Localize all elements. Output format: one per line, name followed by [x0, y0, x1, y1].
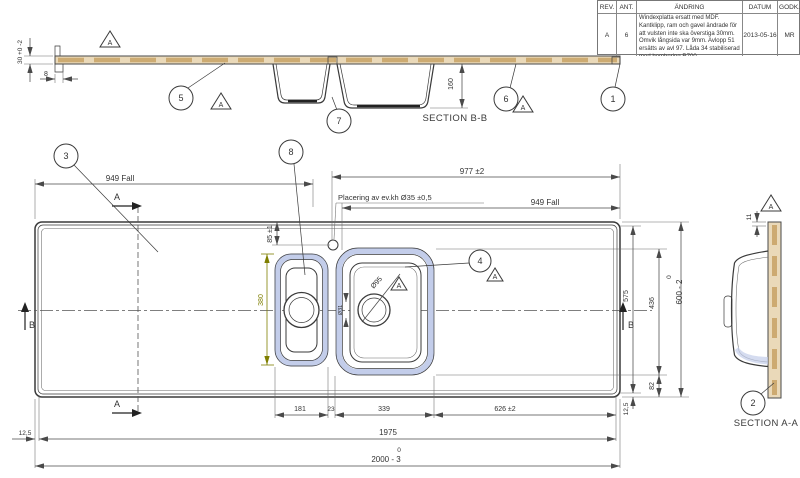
svg-text:4: 4 [477, 256, 482, 266]
dim-front-height-text: 30 +0 -2 [17, 40, 24, 64]
rev-header-ant: ANT. [617, 1, 637, 14]
large-bowl-inner-line [340, 64, 431, 105]
dim-fall-left: 949 Fall [35, 174, 313, 219]
dim-corner-bottom-right: 12,5 [623, 381, 633, 415]
datum-flag-a-3: A [100, 31, 120, 47]
svg-text:B: B [29, 320, 35, 330]
rev-header-rev: REV. [598, 1, 617, 14]
dim-corner-left: 12,5 [12, 430, 35, 439]
svg-text:380: 380 [258, 294, 265, 306]
rev-cell-godk: MR [778, 14, 800, 56]
small-bowl-inner-line [276, 64, 327, 100]
section-aa-label: SECTION A-A [734, 418, 799, 429]
svg-text:11: 11 [746, 213, 753, 220]
edge-fold [55, 64, 63, 72]
dim-lip: 11 [746, 211, 766, 237]
svg-text:436: 436 [649, 297, 656, 309]
section-arrow-b-right: B [619, 302, 634, 330]
dim-flat-length: 1975 [39, 395, 616, 441]
svg-text:12,5: 12,5 [623, 402, 630, 415]
dim-chain-339: 339 [378, 406, 390, 413]
svg-text:82: 82 [649, 382, 656, 390]
svg-text:2: 2 [750, 398, 755, 408]
dim-chain-181: 181 [294, 406, 306, 413]
rev-cell-andring: Windexplatta ersatt med MDF. Kantklipp, … [637, 14, 743, 56]
svg-text:575: 575 [623, 290, 630, 302]
rev-header-andring: ÄNDRING [637, 1, 743, 14]
svg-text:1: 1 [610, 94, 615, 104]
section-arrow-b-left: B [21, 302, 35, 330]
dim-total-length-tol: 0 [397, 447, 401, 454]
rev-header-godk: GODK. [778, 1, 800, 14]
dim-chain-626: 626 ±2 [494, 406, 515, 413]
overflow-detail-aa [724, 296, 732, 327]
section-bb-label: SECTION B-B [422, 113, 487, 124]
svg-text:3: 3 [63, 151, 68, 161]
section-arrow-a-top: A [112, 192, 142, 210]
bowl-profile-inner-aa [736, 257, 768, 362]
section-bb-view: 30 +0 -2 8 160 5 [17, 31, 625, 133]
svg-text:7: 7 [336, 116, 341, 126]
technical-drawing-svg: 30 +0 -2 8 160 5 [0, 0, 800, 478]
revision-table: REV. ANT. ÄNDRING DATUM GODK. A 6 Windex… [597, 0, 800, 55]
svg-text:Ø31: Ø31 [338, 305, 344, 315]
svg-text:0: 0 [666, 275, 673, 279]
svg-text:600 - 2: 600 - 2 [675, 279, 684, 304]
svg-text:A: A [114, 192, 120, 202]
front-edge-lip [55, 46, 60, 56]
balloon-1: 1 [601, 64, 625, 111]
svg-text:A: A [108, 40, 113, 47]
dim-bowl-to-edge: 82 [649, 375, 659, 397]
rev-cell-rev: A [598, 14, 617, 56]
balloon-7: 7 [327, 97, 351, 133]
svg-text:949 Fall: 949 Fall [106, 174, 135, 183]
datum-flag-a-6: A [761, 195, 781, 211]
svg-text:85 ±1: 85 ±1 [267, 225, 274, 243]
balloon-5: 5 [169, 63, 225, 110]
svg-text:A: A [219, 102, 224, 109]
dim-bowl-depth: 160 [430, 64, 468, 108]
svg-text:A: A [114, 399, 120, 409]
svg-text:5: 5 [178, 93, 183, 103]
svg-text:977 ±2: 977 ±2 [460, 167, 485, 176]
svg-text:A: A [521, 105, 526, 112]
svg-text:12,5: 12,5 [19, 430, 32, 437]
balloon-6: 6 [494, 64, 518, 111]
rev-cell-ant: 6 [617, 14, 637, 56]
section-aa-view: A 11 2 SECTION A-A [724, 195, 799, 429]
dim-chain-23: 23 [327, 406, 335, 413]
rev-cell-datum: 2013-05-16 [743, 14, 778, 56]
svg-text:6: 6 [503, 94, 508, 104]
svg-text:1975: 1975 [379, 428, 397, 437]
bowl-shading-aa [735, 347, 768, 365]
drawing-sheet: 30 +0 -2 8 160 5 [0, 0, 800, 478]
worktop-section-aa-bar [768, 222, 781, 398]
datum-flag-a-1: A [211, 93, 231, 109]
svg-text:A: A [397, 283, 402, 290]
large-bowl-section [337, 64, 434, 108]
dim-bowl-depth-text: 160 [448, 78, 455, 90]
svg-text:Placering av ev.kh Ø35 ±0,5: Placering av ev.kh Ø35 ±0,5 [338, 193, 432, 202]
svg-text:949 Fall: 949 Fall [531, 198, 560, 207]
svg-text:A: A [769, 204, 774, 211]
dim-fold-text: 8 [44, 71, 48, 78]
section-arrow-a-bottom: A [112, 399, 142, 417]
dim-fold-width: 8 [40, 66, 78, 83]
rev-header-datum: DATUM [743, 1, 778, 14]
dim-total-length-text: 2000 - 3 [371, 455, 401, 464]
svg-text:A: A [493, 274, 498, 281]
plan-view: A A B B [12, 140, 689, 468]
svg-text:8: 8 [288, 147, 293, 157]
